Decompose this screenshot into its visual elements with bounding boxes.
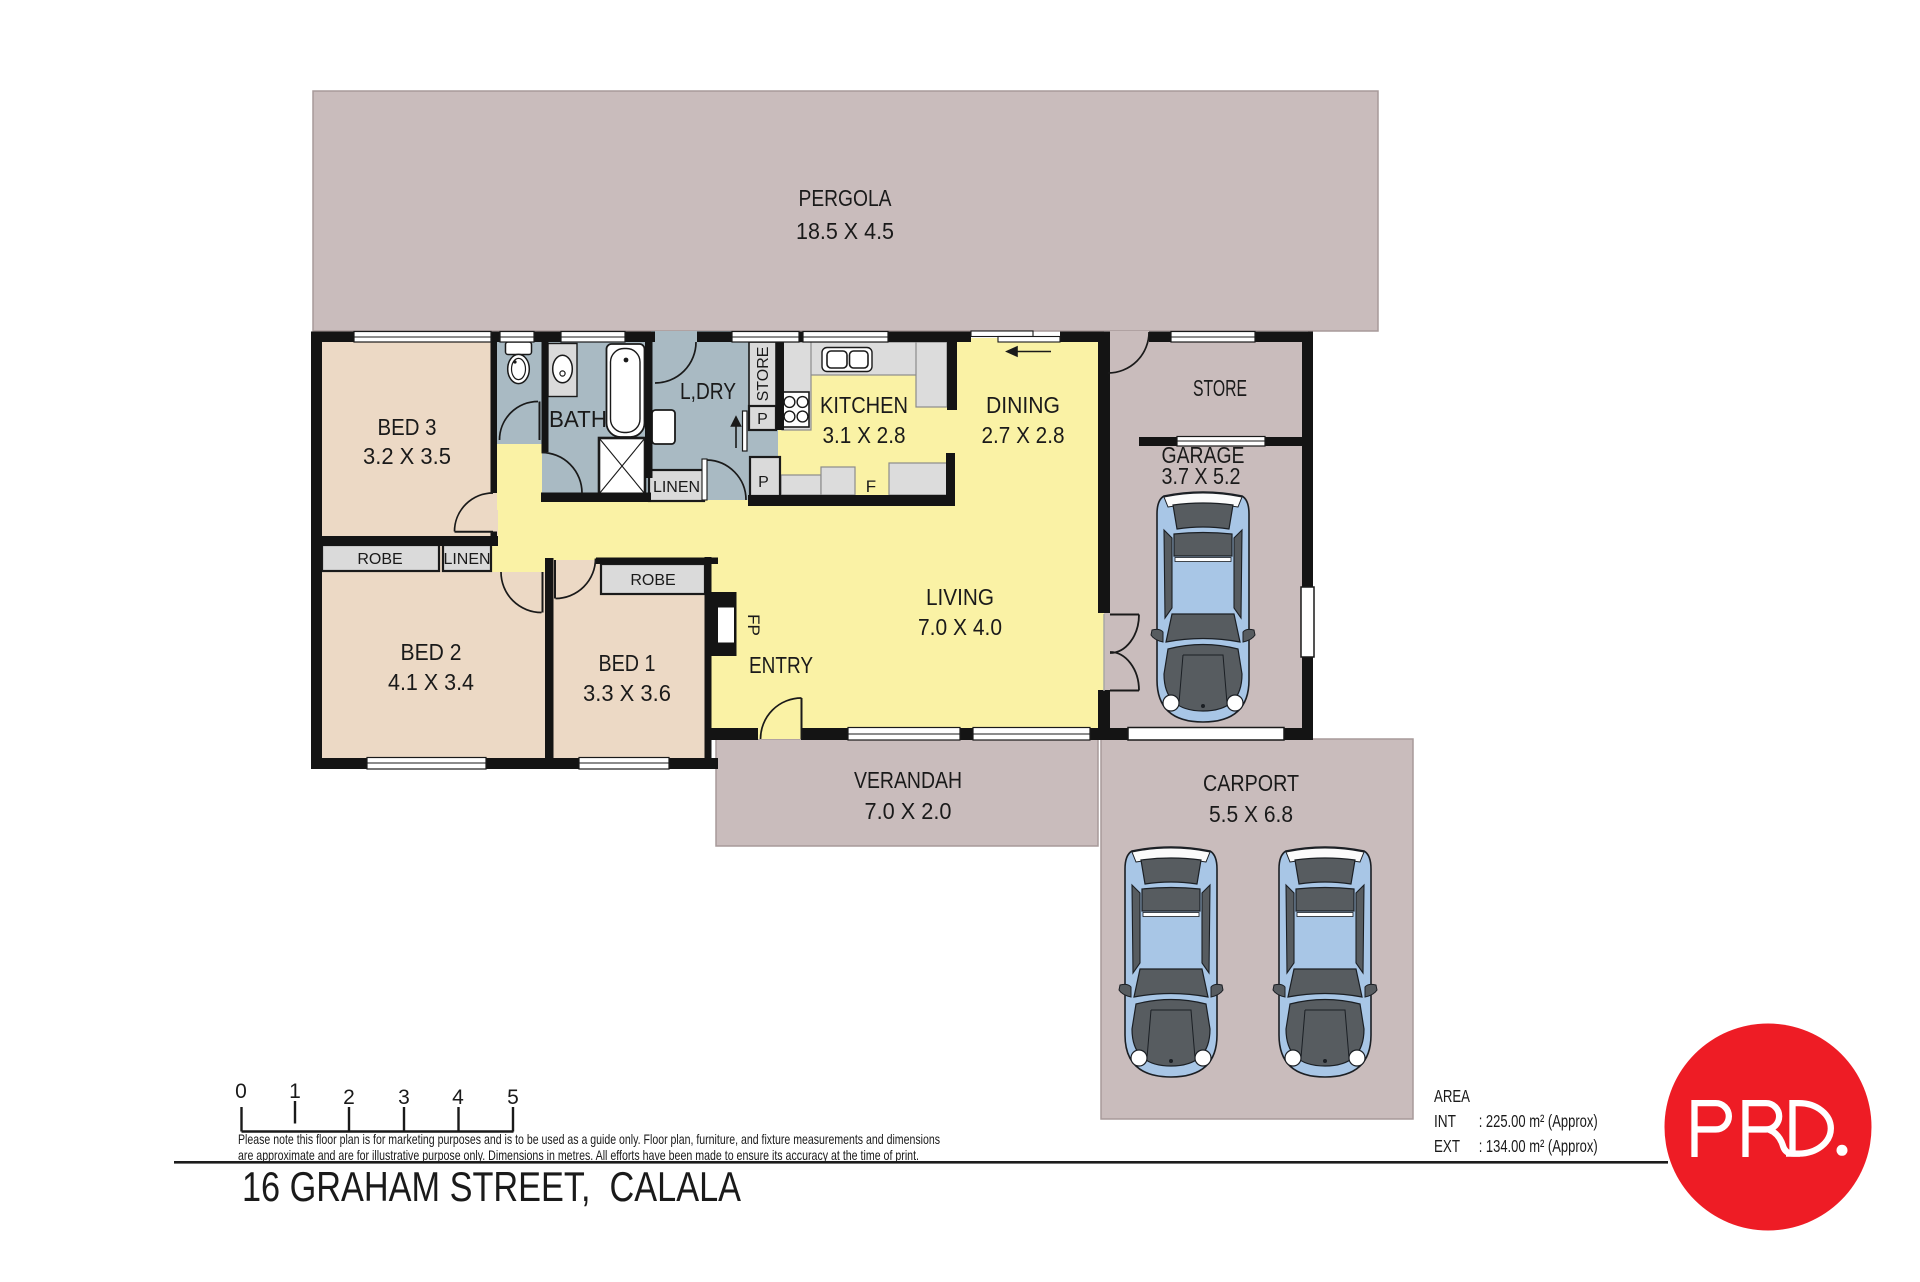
svg-text:INT: INT	[1434, 1111, 1456, 1131]
svg-text:: 225.00 m² (Approx): : 225.00 m² (Approx)	[1479, 1111, 1598, 1131]
svg-text:7.0 X 4.0: 7.0 X 4.0	[918, 614, 1002, 640]
svg-text:0: 0	[235, 1080, 247, 1103]
svg-text:F: F	[866, 477, 876, 496]
svg-text:ROBE: ROBE	[630, 572, 675, 589]
svg-text:2: 2	[343, 1086, 355, 1109]
svg-text:VERANDAH: VERANDAH	[854, 767, 962, 793]
svg-text:AREA: AREA	[1434, 1086, 1470, 1106]
svg-text:P: P	[757, 411, 768, 428]
svg-text:16 GRAHAM STREET, CALALA: 16 GRAHAM STREET, CALALA	[242, 1163, 741, 1210]
svg-text:ENTRY: ENTRY	[749, 652, 813, 678]
svg-text:KITCHEN: KITCHEN	[820, 392, 908, 418]
svg-text:3.7 X 5.2: 3.7 X 5.2	[1162, 463, 1241, 489]
svg-text:7.0 X 2.0: 7.0 X 2.0	[865, 798, 952, 824]
svg-text:FP: FP	[744, 614, 763, 636]
svg-text:CARPORT: CARPORT	[1203, 770, 1299, 796]
svg-text:3: 3	[398, 1086, 410, 1109]
svg-text:2.7 X 2.8: 2.7 X 2.8	[982, 422, 1065, 448]
svg-text:STORE: STORE	[755, 347, 772, 402]
svg-text:BED 2: BED 2	[401, 639, 462, 665]
svg-text:4: 4	[452, 1086, 464, 1109]
svg-text:P: P	[758, 474, 769, 491]
svg-text:PERGOLA: PERGOLA	[799, 185, 892, 211]
svg-text:are approximate and are for il: are approximate and are for illustrative…	[238, 1148, 919, 1163]
svg-text:LINEN: LINEN	[653, 479, 700, 496]
svg-text:BED 1: BED 1	[599, 650, 656, 676]
svg-text:Please note this floor plan is: Please note this floor plan is for marke…	[238, 1132, 940, 1147]
svg-text:EXT: EXT	[1434, 1136, 1460, 1156]
svg-text:3.3 X 3.6: 3.3 X 3.6	[583, 680, 671, 706]
svg-text:5: 5	[507, 1086, 519, 1109]
svg-text:3.1 X 2.8: 3.1 X 2.8	[823, 422, 906, 448]
svg-text:BATH: BATH	[549, 406, 607, 432]
svg-text:ROBE: ROBE	[357, 551, 402, 568]
svg-text:LINEN: LINEN	[443, 551, 490, 568]
svg-text:BED 3: BED 3	[378, 414, 437, 440]
svg-text:3.2 X 3.5: 3.2 X 3.5	[363, 443, 451, 469]
svg-text:DINING: DINING	[986, 392, 1060, 418]
svg-text:1: 1	[289, 1080, 301, 1103]
svg-text:18.5 X 4.5: 18.5 X 4.5	[796, 218, 894, 244]
svg-text:LIVING: LIVING	[926, 584, 994, 610]
svg-text:STORE: STORE	[1193, 375, 1247, 401]
svg-text:4.1 X 3.4: 4.1 X 3.4	[388, 669, 474, 695]
svg-text:5.5 X 6.8: 5.5 X 6.8	[1209, 801, 1293, 827]
svg-text:L,DRY: L,DRY	[680, 378, 736, 404]
svg-text:: 134.00 m² (Approx): : 134.00 m² (Approx)	[1479, 1136, 1598, 1156]
